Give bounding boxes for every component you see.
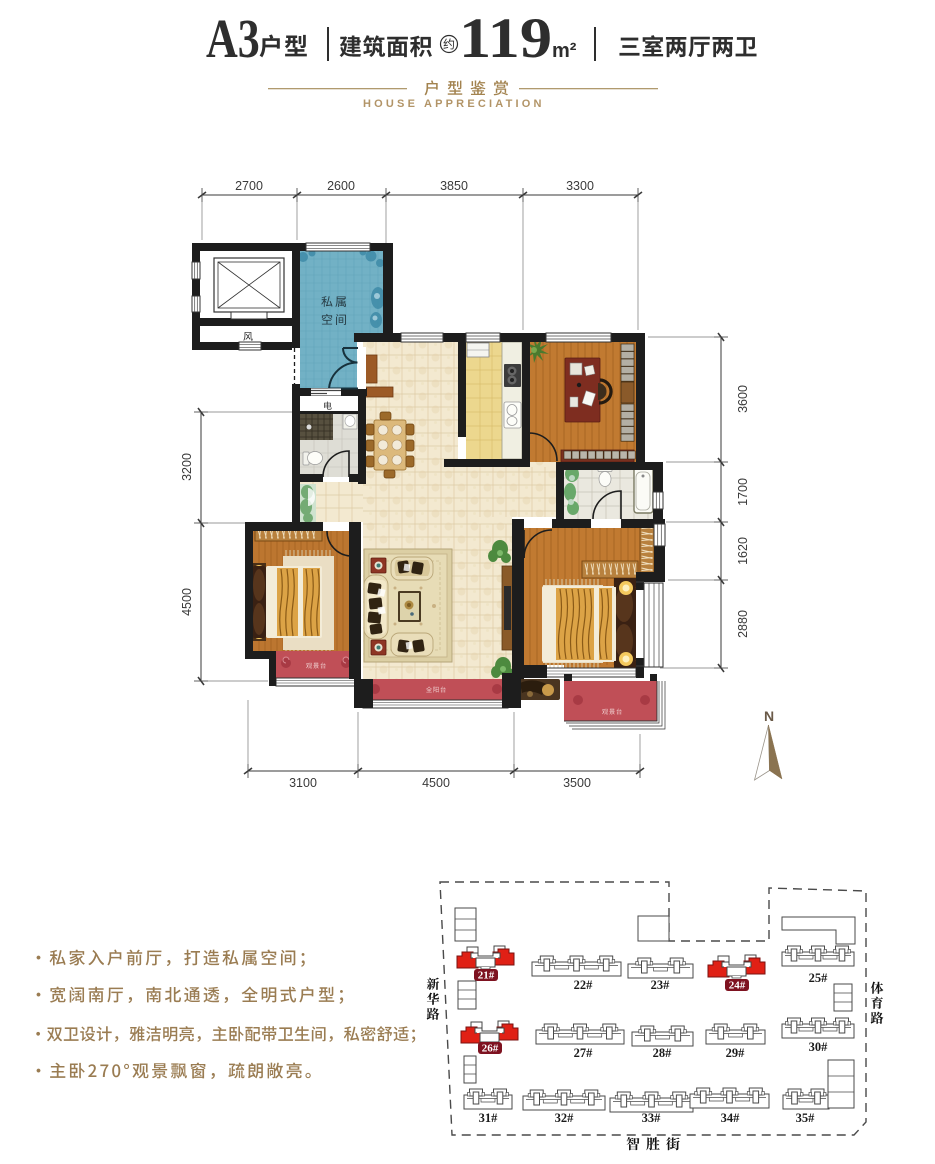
svg-text:m²: m² bbox=[552, 40, 577, 62]
svg-text:33#: 33# bbox=[642, 1111, 662, 1125]
svg-text:3850: 3850 bbox=[440, 179, 468, 193]
svg-text:2880: 2880 bbox=[736, 610, 750, 638]
svg-text:24#: 24# bbox=[729, 980, 746, 992]
svg-text:28#: 28# bbox=[653, 1046, 673, 1060]
svg-text:2600: 2600 bbox=[327, 179, 355, 193]
svg-text:25#: 25# bbox=[809, 971, 829, 985]
svg-text:N: N bbox=[764, 708, 774, 724]
svg-text:34#: 34# bbox=[721, 1111, 741, 1125]
svg-text:3300: 3300 bbox=[566, 179, 594, 193]
svg-text:2700: 2700 bbox=[235, 179, 263, 193]
svg-text:1700: 1700 bbox=[736, 478, 750, 506]
svg-text:23#: 23# bbox=[651, 978, 671, 992]
svg-text:4500: 4500 bbox=[180, 588, 194, 616]
svg-text:4500: 4500 bbox=[422, 776, 450, 790]
svg-text:3100: 3100 bbox=[289, 776, 317, 790]
svg-text:21#: 21# bbox=[478, 970, 495, 982]
svg-text:3500: 3500 bbox=[563, 776, 591, 790]
svg-text:32#: 32# bbox=[555, 1111, 575, 1125]
svg-text:30#: 30# bbox=[809, 1040, 829, 1054]
svg-text:26#: 26# bbox=[482, 1043, 499, 1055]
svg-text:27#: 27# bbox=[574, 1046, 594, 1060]
svg-text:29#: 29# bbox=[726, 1046, 746, 1060]
svg-text:22#: 22# bbox=[574, 978, 594, 992]
svg-text:35#: 35# bbox=[796, 1111, 816, 1125]
svg-text:1620: 1620 bbox=[736, 537, 750, 565]
svg-text:3200: 3200 bbox=[180, 453, 194, 481]
svg-text:A3: A3 bbox=[206, 8, 260, 69]
svg-text:HOUSE APPRECIATION: HOUSE APPRECIATION bbox=[363, 98, 545, 110]
svg-text:119: 119 bbox=[459, 7, 552, 70]
svg-text:3600: 3600 bbox=[736, 385, 750, 413]
svg-text:31#: 31# bbox=[479, 1111, 499, 1125]
